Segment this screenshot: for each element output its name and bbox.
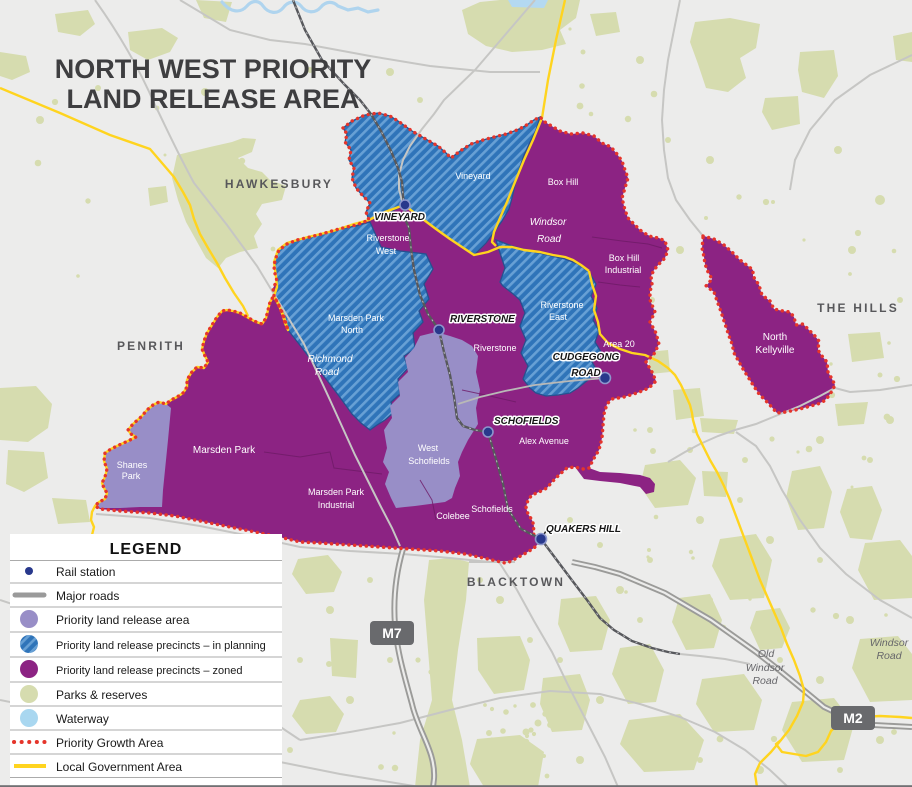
svg-text:CUDGEGONG: CUDGEGONG (553, 352, 620, 363)
svg-text:VINEYARD: VINEYARD (374, 212, 425, 223)
svg-text:Park: Park (122, 471, 141, 481)
svg-text:Road: Road (876, 650, 902, 662)
svg-text:Schofields: Schofields (471, 504, 513, 514)
svg-text:Priority land release precinct: Priority land release precincts – in pla… (56, 640, 266, 652)
svg-text:North: North (763, 332, 787, 343)
svg-text:Riverstone: Riverstone (540, 300, 583, 310)
svg-text:Road: Road (315, 367, 339, 378)
svg-text:M2: M2 (843, 710, 863, 726)
svg-text:Marsden Park: Marsden Park (328, 313, 385, 323)
svg-text:Marsden Park: Marsden Park (193, 445, 256, 456)
svg-text:LEGEND: LEGEND (110, 541, 183, 558)
svg-text:Shanes: Shanes (117, 460, 148, 470)
svg-text:Parks & reserves: Parks & reserves (56, 688, 147, 702)
svg-text:Road: Road (752, 675, 778, 687)
svg-text:Colebee: Colebee (436, 511, 470, 521)
svg-text:Waterway: Waterway (56, 712, 109, 726)
svg-text:Priority Growth Area: Priority Growth Area (56, 736, 164, 750)
svg-text:PENRITH: PENRITH (117, 339, 185, 353)
svg-text:LAND RELEASE AREA: LAND RELEASE AREA (66, 84, 359, 114)
svg-text:SCHOFIELDS: SCHOFIELDS (494, 416, 559, 427)
svg-text:ROAD: ROAD (571, 368, 600, 379)
svg-text:Riverstone: Riverstone (366, 233, 409, 243)
svg-text:Box Hill: Box Hill (548, 177, 579, 187)
svg-text:Vineyard: Vineyard (455, 171, 490, 181)
svg-text:QUAKERS HILL: QUAKERS HILL (546, 524, 621, 535)
svg-text:Marsden Park: Marsden Park (308, 487, 365, 497)
svg-text:Riverstone: Riverstone (473, 343, 516, 353)
svg-text:Windsor: Windsor (746, 662, 785, 674)
svg-text:West: West (418, 443, 439, 453)
svg-text:Area 20: Area 20 (603, 339, 635, 349)
svg-text:West: West (376, 246, 397, 256)
svg-text:NORTH WEST PRIORITY: NORTH WEST PRIORITY (55, 54, 372, 84)
svg-text:Schofields: Schofields (408, 456, 450, 466)
svg-text:Windsor: Windsor (530, 217, 567, 228)
svg-text:Alex Avenue: Alex Avenue (519, 436, 569, 446)
svg-text:Rail station: Rail station (56, 565, 115, 579)
svg-text:North: North (341, 325, 363, 335)
svg-text:Industrial: Industrial (318, 500, 355, 510)
svg-text:Box Hill: Box Hill (609, 253, 640, 263)
svg-text:Old: Old (758, 648, 776, 660)
svg-text:Priority land release area: Priority land release area (56, 613, 190, 627)
svg-text:Major roads: Major roads (56, 589, 119, 603)
svg-text:Industrial: Industrial (605, 265, 642, 275)
svg-text:RIVERSTONE: RIVERSTONE (450, 314, 515, 325)
svg-text:Kellyville: Kellyville (756, 345, 795, 356)
svg-text:Local Government Area: Local Government Area (56, 760, 182, 774)
svg-text:THE HILLS: THE HILLS (817, 301, 899, 315)
svg-text:BLACKTOWN: BLACKTOWN (467, 575, 565, 589)
svg-text:Priority land release precinct: Priority land release precincts – zoned (56, 665, 242, 677)
svg-text:Road: Road (537, 234, 561, 245)
svg-text:East: East (549, 312, 568, 322)
svg-text:M7: M7 (382, 625, 402, 641)
svg-text:Windsor: Windsor (870, 637, 909, 649)
svg-text:Richmond: Richmond (307, 354, 352, 365)
svg-text:HAWKESBURY: HAWKESBURY (225, 177, 333, 191)
